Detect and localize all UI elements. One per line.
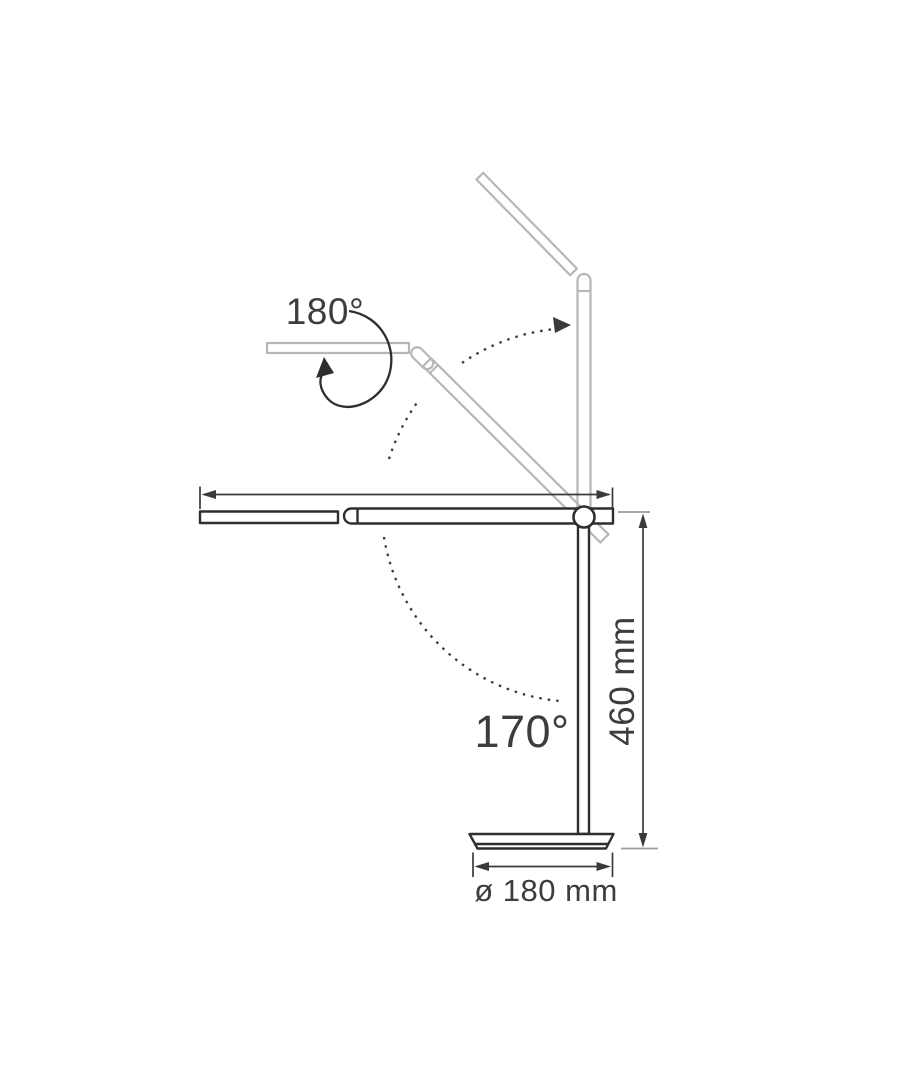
ghost-head-upper [476, 173, 577, 275]
arm-swing-upper-arc-segment-2 [462, 329, 556, 363]
arm-swing-upper-arc-segment-1 [389, 400, 419, 459]
base-diameter-dimension: ø 180 mm [473, 853, 618, 909]
ghost-positions-group [267, 173, 608, 543]
height-arrow-up-icon [639, 514, 648, 529]
arm-swing-lower-arc [384, 537, 560, 701]
base-diameter-arrow-left-icon [475, 862, 490, 871]
lamp-group [200, 507, 614, 849]
lamp-dimension-diagram: 460 mm ø 180 mm 180° [0, 0, 910, 1080]
ghost-head-left [267, 343, 409, 353]
lamp-base [470, 834, 614, 849]
head-rotation-arrowhead-icon [316, 357, 334, 378]
height-dimension-label: 460 mm [603, 616, 642, 745]
arm-rotation-label: 170° [474, 706, 569, 757]
lamp-diagram-canvas: 460 mm ø 180 mm 180° [0, 0, 910, 1080]
lamp-pole [578, 517, 589, 834]
base-diameter-arrow-right-icon [597, 862, 612, 871]
arm-swing-arrowhead-icon [553, 317, 571, 333]
ghost-arm-vertical-cap [578, 274, 591, 291]
ghost-arm-vertical [578, 274, 591, 512]
lamp-head [200, 512, 338, 524]
arm-length-dimension [200, 487, 613, 510]
arm-length-arrow-right-icon [597, 490, 612, 499]
height-arrow-down-icon [639, 833, 648, 848]
base-diameter-label: ø 180 mm [474, 873, 618, 908]
lamp-joint [574, 507, 595, 528]
height-dimension: 460 mm [603, 512, 658, 849]
arm-length-arrow-left-icon [202, 490, 217, 499]
